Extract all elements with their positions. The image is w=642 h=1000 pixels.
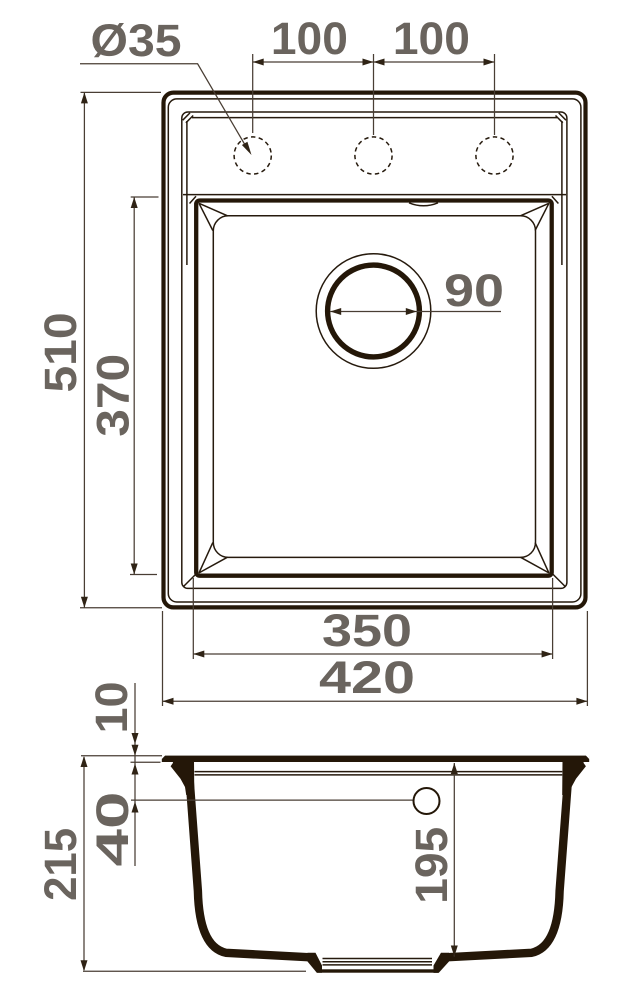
svg-text:Ø35: Ø35 [91,15,182,66]
svg-text:370: 370 [88,354,139,437]
svg-text:90: 90 [444,265,504,316]
svg-text:215: 215 [35,828,86,901]
svg-text:510: 510 [35,313,86,393]
svg-text:40: 40 [87,792,138,867]
svg-text:10: 10 [86,682,137,734]
svg-text:350: 350 [322,605,412,656]
svg-text:195: 195 [406,827,457,904]
svg-text:420: 420 [319,652,415,703]
svg-text:100: 100 [393,13,470,64]
svg-text:100: 100 [271,13,348,64]
